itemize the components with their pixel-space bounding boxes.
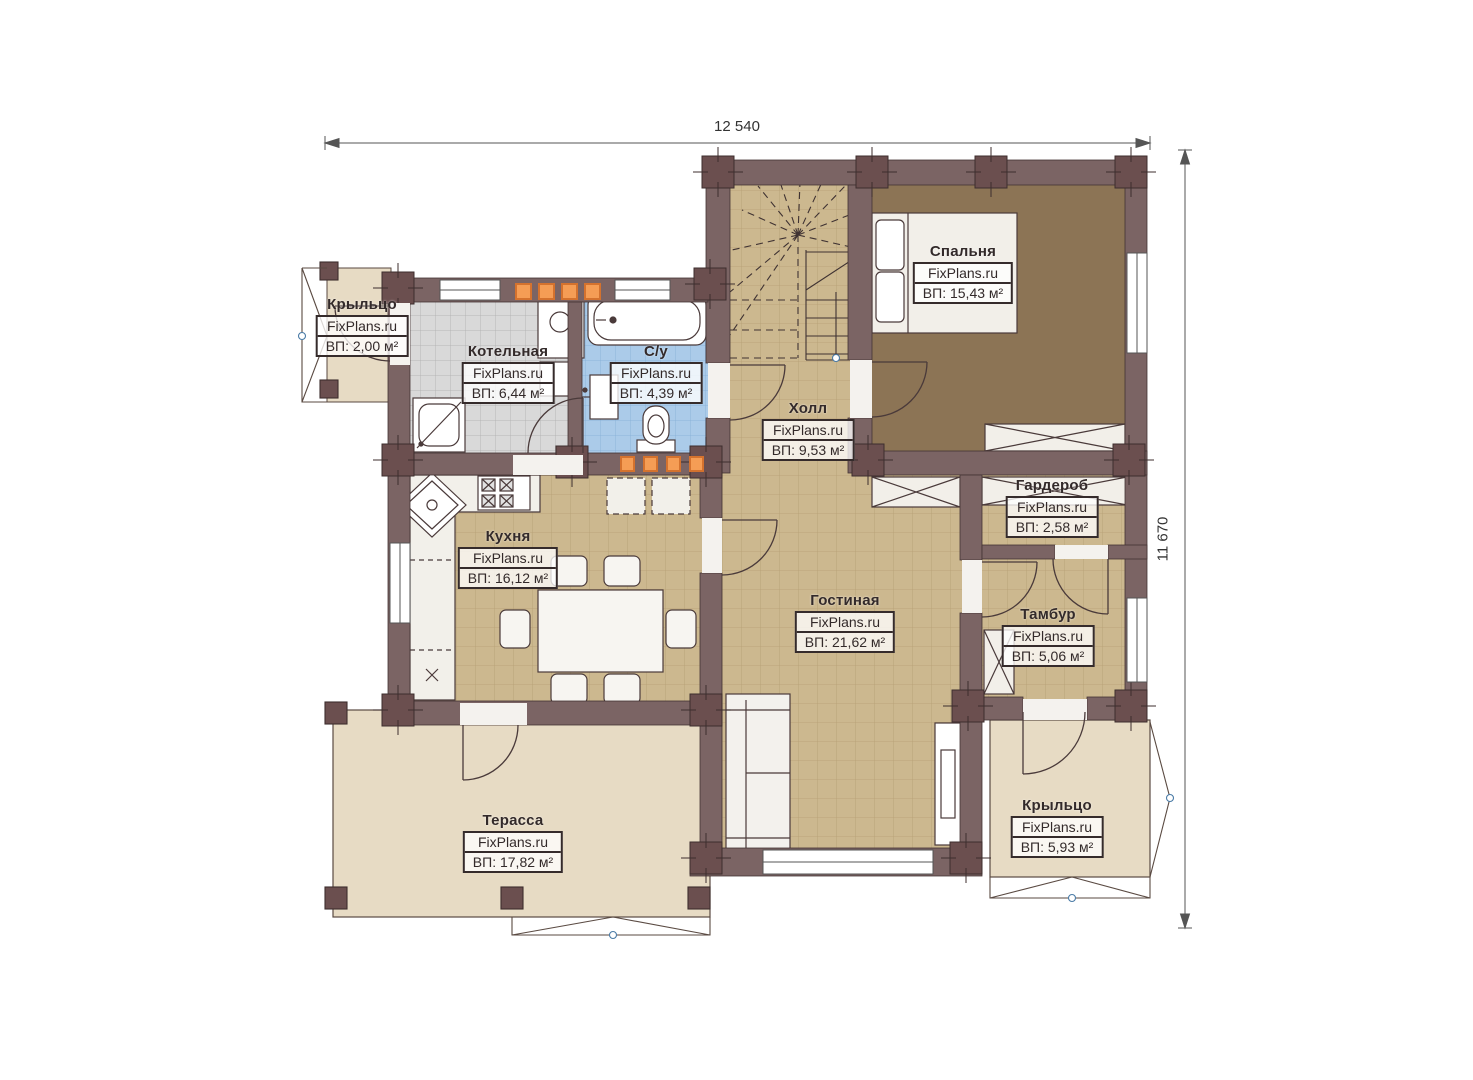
- watermark: FixPlans.ru: [1008, 498, 1097, 518]
- room-area: ВП: 6,44 м²: [464, 384, 553, 402]
- room-label-wardrobe: Гардероб FixPlans.ru ВП: 2,58 м²: [1006, 477, 1099, 538]
- area-box: FixPlans.ru ВП: 16,12 м²: [458, 547, 558, 589]
- room-label-porch-top: Крыльцо FixPlans.ru ВП: 2,00 м²: [316, 296, 409, 357]
- window-bathroom-top: [615, 280, 670, 300]
- area-box: FixPlans.ru ВП: 17,82 м²: [463, 831, 563, 873]
- room-area: ВП: 16,12 м²: [460, 569, 556, 587]
- room-area: ВП: 2,00 м²: [318, 337, 407, 355]
- stove: [478, 476, 530, 510]
- watermark: FixPlans.ru: [764, 421, 853, 441]
- room-label-hall: Холл FixPlans.ru ВП: 9,53 м²: [762, 400, 855, 461]
- room-area: ВП: 2,58 м²: [1008, 518, 1097, 536]
- floor-plan-page: 12 540 11 670 Крыльцо FixPlans.ru ВП: 2,…: [0, 0, 1473, 1080]
- area-box: FixPlans.ru ВП: 21,62 м²: [795, 611, 895, 653]
- room-name: Холл: [762, 400, 855, 417]
- room-name: Гостиная: [795, 592, 895, 609]
- area-box: FixPlans.ru ВП: 5,93 м²: [1011, 816, 1104, 858]
- dimension-height-label: 11 670: [1155, 517, 1172, 562]
- watermark: FixPlans.ru: [1013, 818, 1102, 838]
- room-area: ВП: 5,06 м²: [1004, 647, 1093, 665]
- watermark: FixPlans.ru: [465, 833, 561, 853]
- area-box: FixPlans.ru ВП: 2,58 м²: [1006, 496, 1099, 538]
- watermark: FixPlans.ru: [318, 317, 407, 337]
- room-area: ВП: 5,93 м²: [1013, 838, 1102, 856]
- area-box: FixPlans.ru ВП: 9,53 м²: [762, 419, 855, 461]
- room-area: ВП: 4,39 м²: [612, 384, 701, 402]
- room-name: Крыльцо: [316, 296, 409, 313]
- room-area: ВП: 21,62 м²: [797, 633, 893, 651]
- area-box: FixPlans.ru ВП: 6,44 м²: [462, 362, 555, 404]
- watermark: FixPlans.ru: [460, 549, 556, 569]
- window-bedroom-right: [1127, 253, 1147, 353]
- dimension-width-label: 12 540: [714, 118, 760, 135]
- room-name: Кухня: [458, 528, 558, 545]
- room-label-terrace: Терасса FixPlans.ru ВП: 17,82 м²: [463, 812, 563, 873]
- room-name: Тамбур: [1002, 606, 1095, 623]
- room-label-living: Гостиная FixPlans.ru ВП: 21,62 м²: [795, 592, 895, 653]
- window-vestibule-right: [1127, 598, 1147, 682]
- shower-tray: [413, 398, 465, 452]
- bathtub: [588, 295, 706, 345]
- room-area: ВП: 15,43 м²: [915, 284, 1011, 302]
- window-kitchen-left: [390, 543, 410, 623]
- room-name: Гардероб: [1006, 477, 1099, 494]
- window-boiler-top: [440, 280, 500, 300]
- room-label-bathroom: С/у FixPlans.ru ВП: 4,39 м²: [610, 343, 703, 404]
- sofa: [726, 694, 790, 854]
- watermark: FixPlans.ru: [464, 364, 553, 384]
- room-label-kitchen: Кухня FixPlans.ru ВП: 16,12 м²: [458, 528, 558, 589]
- room-label-vestibule: Тамбур FixPlans.ru ВП: 5,06 м²: [1002, 606, 1095, 667]
- bedroom-wardrobe: [985, 424, 1125, 451]
- room-area: ВП: 9,53 м²: [764, 441, 853, 459]
- room-label-bedroom: Спальня FixPlans.ru ВП: 15,43 м²: [913, 243, 1013, 304]
- room-name: Крыльцо: [1011, 797, 1104, 814]
- room-name: Терасса: [463, 812, 563, 829]
- sideboard: [935, 723, 963, 845]
- area-box: FixPlans.ru ВП: 15,43 м²: [913, 262, 1013, 304]
- watermark: FixPlans.ru: [797, 613, 893, 633]
- area-box: FixPlans.ru ВП: 5,06 м²: [1002, 625, 1095, 667]
- terrace-steps: [512, 917, 710, 939]
- room-area: ВП: 17,82 м²: [465, 853, 561, 871]
- watermark: FixPlans.ru: [1004, 627, 1093, 647]
- room-label-porch-bottom: Крыльцо FixPlans.ru ВП: 5,93 м²: [1011, 797, 1104, 858]
- watermark: FixPlans.ru: [612, 364, 701, 384]
- room-name: С/у: [610, 343, 703, 360]
- watermark: FixPlans.ru: [915, 264, 1011, 284]
- floor-plan-drawing: [0, 0, 1473, 1080]
- window-living-bottom: [763, 850, 933, 874]
- room-name: Котельная: [462, 343, 555, 360]
- area-box: FixPlans.ru ВП: 2,00 м²: [316, 315, 409, 357]
- living-closet: [872, 477, 960, 507]
- area-box: FixPlans.ru ВП: 4,39 м²: [610, 362, 703, 404]
- dining-table: [538, 590, 663, 672]
- room-label-boiler: Котельная FixPlans.ru ВП: 6,44 м²: [462, 343, 555, 404]
- room-name: Спальня: [913, 243, 1013, 260]
